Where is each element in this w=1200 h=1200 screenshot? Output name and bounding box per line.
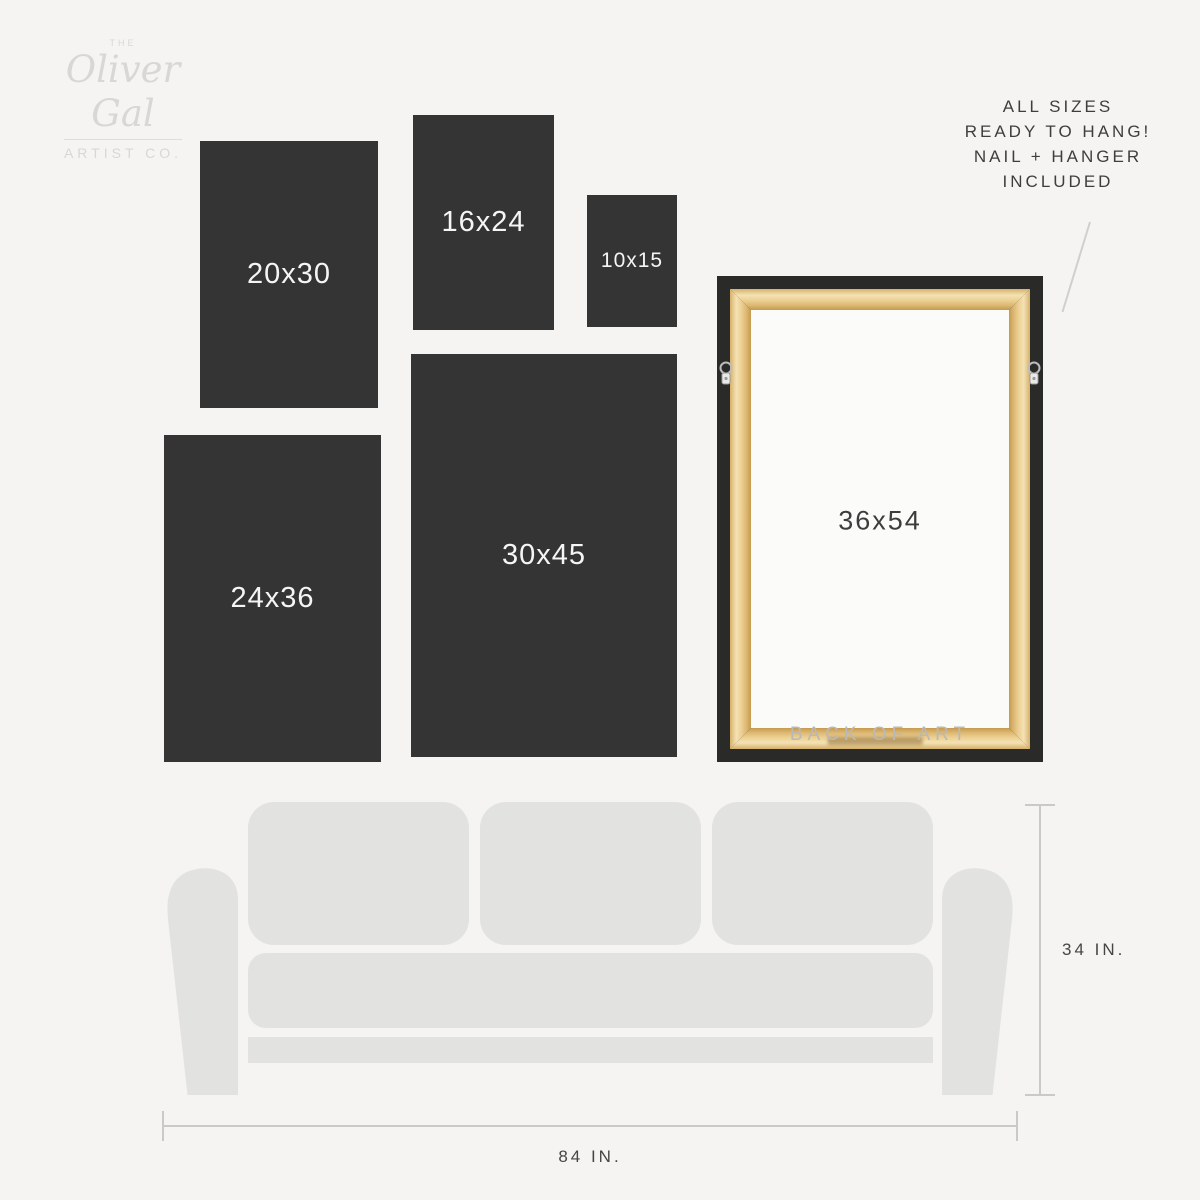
logo-brand-name: Oliver Gal [40,48,206,136]
size-label: 20x30 [247,258,331,291]
stretcher-bar-top [730,289,1030,310]
size-panel-10x15: 10x15 [587,195,677,327]
size-panel-16x24: 16x24 [413,115,554,330]
logo-the-text: THE [40,38,206,48]
size-panel-20x30: 20x30 [200,141,378,408]
dimension-cap [1025,1094,1055,1096]
size-label: 10x15 [601,249,663,273]
note-line: INCLUDED [920,169,1196,194]
dimension-cap [162,1111,164,1141]
size-label: 36x54 [717,506,1043,537]
dimension-cap [1016,1111,1018,1141]
sofa-back-cushion [480,802,701,945]
canvas-back-frame: 36x54 BACK OF ART [717,276,1043,762]
dimension-cap [1025,804,1055,806]
logo-divider [64,139,182,140]
sofa-base [248,1037,933,1063]
sofa-back-cushion [248,802,469,945]
size-label: 24x36 [230,582,314,615]
d-ring-hanger-icon [717,360,735,388]
size-panel-30x45: 30x45 [411,354,677,757]
note-line: ALL SIZES [920,94,1196,119]
d-ring-hanger-icon [1025,360,1043,388]
sofa-height-label: 34 IN. [1062,940,1125,960]
back-of-art-caption: BACK OF ART [717,724,1043,746]
sofa-width-label: 84 IN. [490,1147,690,1167]
size-label: 16x24 [441,206,525,239]
sofa-height-dimension-line [1039,805,1041,1095]
size-guide-infographic: THE Oliver Gal ARTIST CO. ALL SIZES READ… [0,0,1200,1200]
sofa-armrest-left [163,866,239,1095]
sofa-seat-cushion [248,953,933,1028]
ready-to-hang-note: ALL SIZES READY TO HANG! NAIL + HANGER I… [920,94,1196,194]
sofa-back-cushion [712,802,933,945]
sofa-armrest-right [941,866,1017,1095]
size-label: 30x45 [502,539,586,572]
logo-subtitle: ARTIST CO. [40,145,206,161]
brand-logo: THE Oliver Gal ARTIST CO. [40,38,206,161]
note-line: NAIL + HANGER [920,144,1196,169]
note-pointer-line [1062,222,1091,312]
note-line: READY TO HANG! [920,119,1196,144]
sofa-width-dimension-line [163,1125,1017,1127]
size-panel-24x36: 24x36 [164,435,381,762]
